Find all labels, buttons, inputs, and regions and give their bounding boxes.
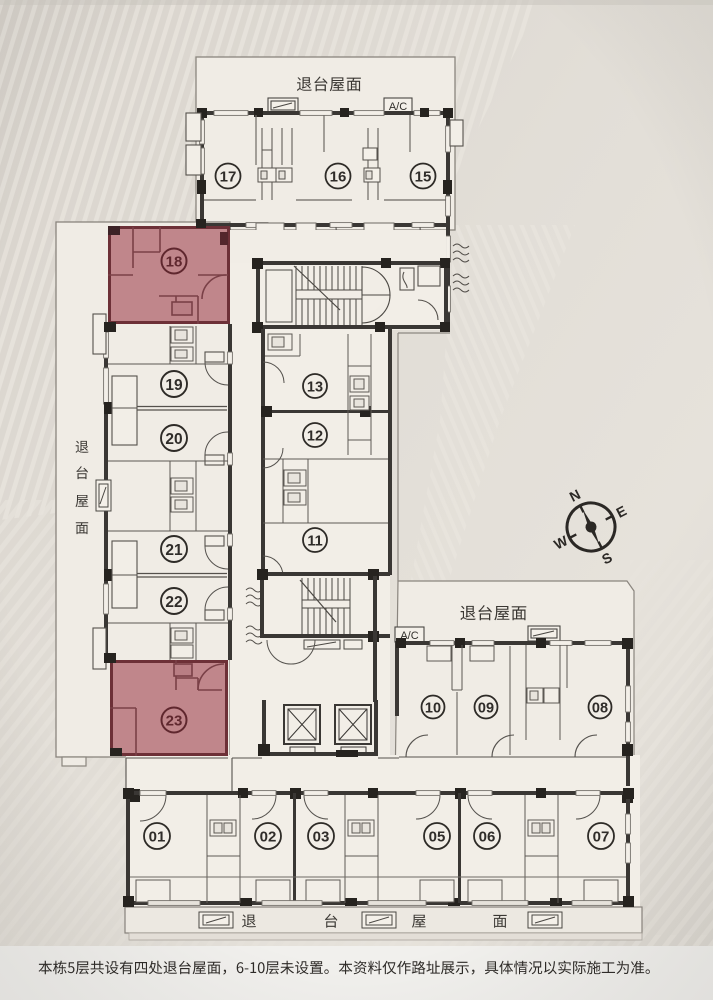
svg-text:23: 23 (166, 713, 183, 730)
svg-text:15: 15 (415, 169, 432, 186)
svg-text:05: 05 (429, 829, 446, 846)
svg-text:02: 02 (260, 829, 277, 846)
svg-text:13: 13 (307, 380, 323, 396)
svg-text:08: 08 (592, 701, 608, 717)
svg-text:19: 19 (165, 377, 183, 394)
svg-text:06: 06 (479, 829, 496, 846)
svg-text:03: 03 (313, 829, 330, 846)
svg-text:01: 01 (149, 829, 166, 846)
svg-text:12: 12 (307, 429, 323, 445)
svg-text:21: 21 (165, 542, 183, 559)
svg-text:16: 16 (330, 169, 347, 186)
svg-text:18: 18 (166, 254, 183, 271)
svg-text:09: 09 (478, 701, 494, 717)
svg-text:07: 07 (593, 829, 610, 846)
svg-text:22: 22 (165, 594, 182, 611)
svg-text:17: 17 (220, 169, 237, 186)
svg-text:11: 11 (307, 534, 322, 550)
svg-text:10: 10 (425, 701, 441, 717)
svg-text:20: 20 (165, 431, 182, 448)
